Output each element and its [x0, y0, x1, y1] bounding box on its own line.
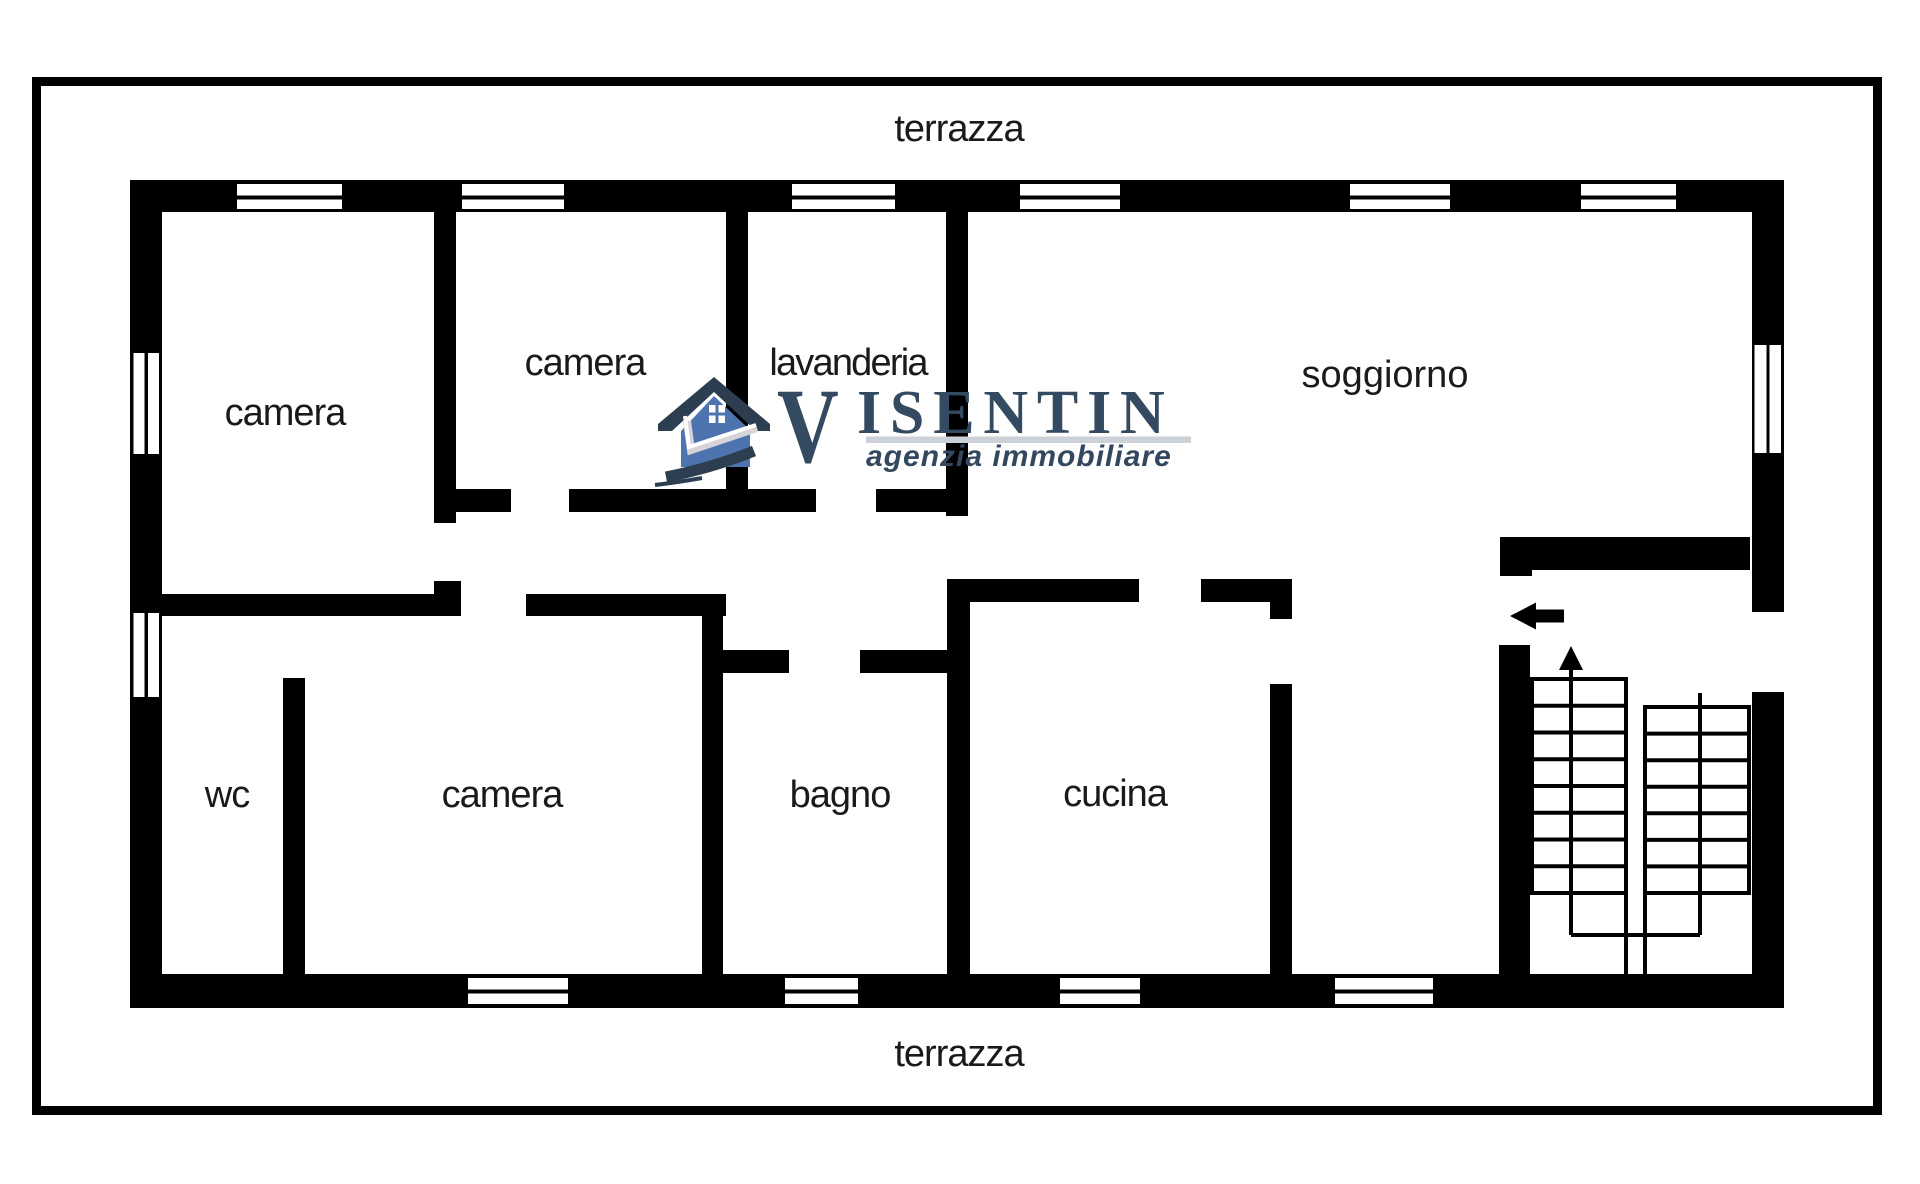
- svg-text:terrazza: terrazza: [894, 108, 1025, 150]
- svg-text:V: V: [777, 367, 839, 485]
- svg-text:wc: wc: [204, 774, 249, 816]
- svg-text:camera: camera: [225, 392, 348, 434]
- svg-text:agenzia immobiliare: agenzia immobiliare: [866, 440, 1172, 473]
- svg-text:cucina: cucina: [1063, 773, 1169, 815]
- svg-text:terrazza: terrazza: [894, 1033, 1025, 1075]
- svg-text:bagno: bagno: [790, 774, 891, 816]
- svg-text:soggiorno: soggiorno: [1302, 354, 1469, 396]
- svg-text:camera: camera: [525, 342, 648, 384]
- svg-text:camera: camera: [442, 774, 565, 816]
